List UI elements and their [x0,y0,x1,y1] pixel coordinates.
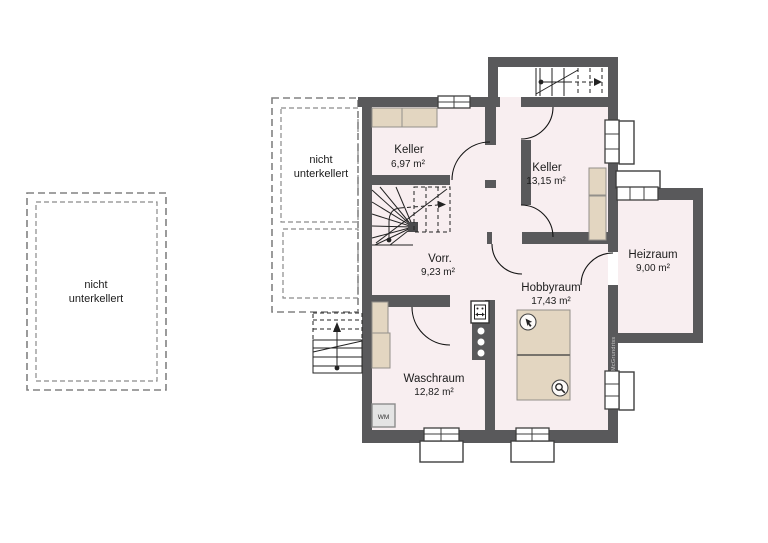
room-area-vorraum: 9,23 m² [421,267,456,278]
cabinet-keller1-a [372,108,402,127]
shelf-keller2-a [589,168,606,195]
wall-keller1-east-b [485,180,496,188]
flue-circle [478,350,485,357]
no-basement-label-left-1: nicht [84,279,107,291]
light-well [420,441,463,462]
wall-north-east [521,97,618,107]
cabinet-waschraum-a [372,302,388,333]
corridor-opening [500,97,521,107]
cabinet-keller1-b [402,108,437,127]
wall-keller2-west [521,140,531,205]
wall-heizraum-east [693,188,703,343]
no-basement-label-left-2: unterkellert [69,293,123,305]
washing-machine: WM [372,404,395,427]
wall-north-west [358,97,500,107]
light-well [616,171,660,188]
room-name-heizraum: Heizraum [628,249,677,261]
room-name-waschraum: Waschraum [404,373,465,385]
wall-heizraum-south [612,333,703,343]
dashed-outline-outer [27,193,166,390]
light-well [511,441,554,462]
room-name-vorraum: Vorr. [428,253,452,265]
floorplan-canvas: nicht unterkellert nicht unterkellert [0,0,768,543]
cabinet-waschraum-b [372,333,390,368]
flue-circle [478,328,485,335]
no-basement-label-center-1: nicht [309,154,332,166]
wall-keller1-east-a [485,97,496,145]
stair-direction-arrow [333,322,341,332]
flue-circle [478,339,485,346]
room-area-heizraum: 9,00 m² [636,263,671,274]
room-name-keller2: Keller [532,162,562,174]
stair-newel [408,222,418,232]
light-well [619,372,634,410]
basement-floorplan: nicht unterkellert nicht unterkellert [0,0,768,543]
wall-south-a [362,430,425,443]
wall-south-b [458,430,517,443]
no-basement-area-center [272,98,358,312]
room-area-keller2: 13,15 m² [526,176,566,187]
hand-pointer-icon[interactable] [520,314,536,330]
wall-west [362,97,372,443]
meter-box [471,301,489,323]
room-area-hobbyraum: 17,43 m² [531,296,571,307]
window-south-hobbyraum [511,428,554,462]
wall-keller2-south-a [487,232,492,244]
window-north [438,96,470,108]
light-well [619,121,634,164]
window-heizraum-north [616,171,660,200]
washing-machine-label: WM [378,414,390,421]
dashed-outline-outer [272,98,358,312]
room-area-keller1: 6,97 m² [391,159,426,170]
no-basement-area-left [27,193,166,390]
magnifier-icon[interactable] [552,380,568,396]
window-south-waschraum [420,428,463,462]
room-area-waschraum: 12,82 m² [414,387,454,398]
wall-keller1-south [362,175,450,185]
room-name-keller1: Keller [394,144,424,156]
west-exterior-stairs [313,313,362,373]
dashed-outline-inner [36,202,157,381]
room-name-hobbyraum: Hobbyraum [521,282,580,294]
shelf-keller2-b [589,196,606,240]
window-east-upper [605,120,634,164]
wall-heizraum-west-b [608,285,618,333]
wall-south-c [548,430,618,443]
wall-heizraum-west-a [608,200,618,252]
dashed-outline-inner-2 [283,229,358,298]
wall-vestibule-top [488,57,618,67]
watermark-text: McGrundriss [611,337,617,371]
window-east-lower [605,371,634,410]
wall-heizraum-north-a [608,188,617,200]
no-basement-label-center-2: unterkellert [294,168,348,180]
chimney-flues [478,328,485,357]
